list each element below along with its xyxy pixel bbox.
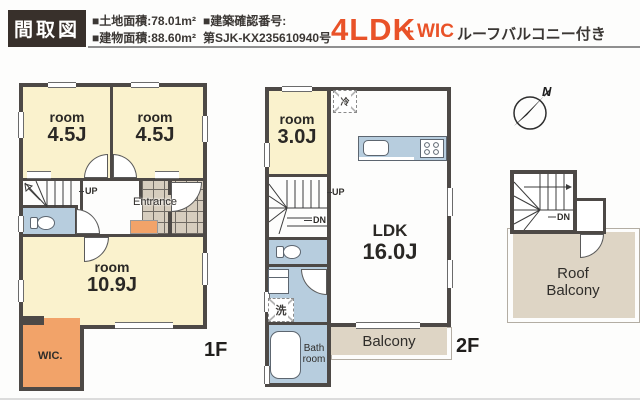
wall (265, 237, 331, 240)
tick (304, 220, 312, 221)
wall (168, 212, 172, 234)
wall (265, 383, 331, 387)
main-room-label: room 10.9J (72, 260, 152, 296)
floor-2f-label: 2F (456, 335, 479, 358)
tick (327, 192, 332, 193)
stairs-1f (23, 181, 80, 207)
vanity-unit (268, 269, 289, 294)
roof-landing (577, 198, 606, 234)
laundry-space: 洗 (268, 298, 294, 322)
up-label-2f: UP (332, 187, 345, 197)
door-arc (76, 209, 100, 234)
room-3j-label: room 3.0J (267, 112, 327, 148)
wall (577, 198, 606, 201)
header-divider (88, 46, 640, 48)
plan-title: 間取図 (14, 15, 80, 42)
laundry-label: 洗 (275, 302, 288, 318)
window (18, 280, 24, 302)
wall (22, 234, 204, 237)
stairs-2f (269, 180, 327, 234)
fridge-space: 冷 (333, 90, 357, 113)
window (202, 116, 208, 142)
window (447, 188, 453, 216)
wall (19, 387, 84, 391)
wall (603, 198, 606, 234)
window (48, 82, 76, 88)
stove-burners-icon (420, 139, 444, 158)
window (202, 253, 208, 285)
area-info: ■土地面積:78.01m² ■建物面積:88.60m² (92, 13, 196, 48)
compass-north-label: N (542, 84, 551, 99)
confirmation-label: ■建築確認番号: (203, 13, 331, 30)
closet-door (155, 171, 179, 179)
kitchen-sink (363, 140, 389, 156)
layout-feature: ルーフバルコニー付き (457, 23, 606, 44)
closet-door (27, 171, 51, 179)
confirmation-info: ■建築確認番号: 第SJK-KX235610940号 (203, 13, 331, 48)
plan-title-box: 間取図 (8, 10, 86, 47)
window (356, 322, 420, 329)
floor-1f-label: 1F (204, 339, 227, 362)
window (282, 86, 312, 92)
room-b-label: room 4.5J (122, 110, 188, 146)
ldk-label: LDK 16.0J (355, 222, 425, 263)
wall (80, 181, 83, 210)
toilet-icon (276, 244, 302, 260)
tick (79, 191, 84, 192)
window (18, 216, 24, 232)
vanity-line (268, 277, 289, 278)
entrance-label: Entrance (133, 196, 177, 208)
wall (80, 325, 84, 391)
wall (22, 316, 44, 325)
window (115, 322, 173, 329)
layout-plus: + (404, 22, 414, 42)
room-a-label: room 4.5J (34, 110, 100, 146)
roof-balcony-label: Roof Balcony (533, 262, 613, 302)
fridge-label: 冷 (339, 95, 350, 108)
layout-wic: WIC (417, 21, 454, 43)
bathtub (270, 331, 301, 379)
dn-label-2f: DN (312, 215, 327, 225)
up-label-1f: UP (85, 186, 98, 196)
entrance-step (130, 220, 158, 234)
wall (265, 264, 331, 267)
window (447, 260, 453, 288)
wall (265, 322, 331, 325)
wic-label: WIC. (38, 350, 62, 362)
window (131, 82, 159, 88)
floor-plan-page: 間取図 ■土地面積:78.01m² ■建物面積:88.60m² ■建築確認番号:… (0, 0, 640, 400)
window (18, 112, 24, 138)
wall (265, 174, 331, 177)
counter-edge (359, 157, 414, 160)
toilet-icon (30, 215, 56, 231)
dn-label-roof: DN (556, 212, 571, 222)
land-area: ■土地面積:78.01m² (92, 13, 196, 30)
bathroom-label: Bath room (298, 340, 330, 368)
balcony-label: Balcony (349, 331, 429, 351)
